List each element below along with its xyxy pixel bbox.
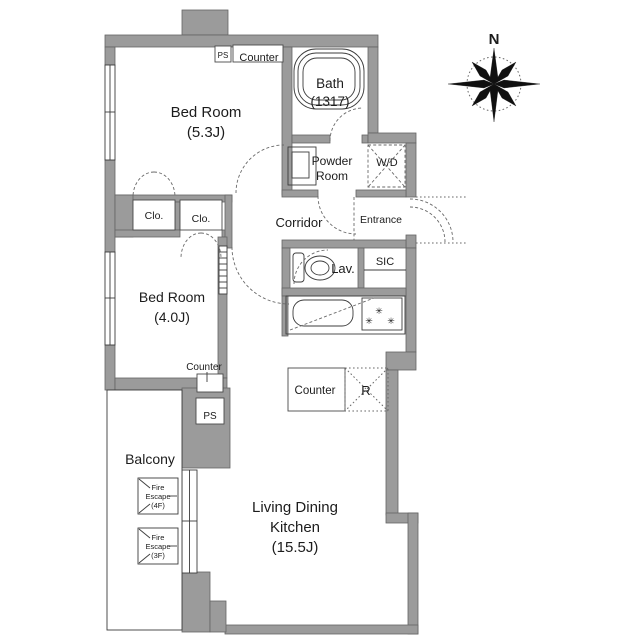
counter-mid-label: Counter — [186, 362, 222, 373]
ldk-counter-label: Counter — [295, 385, 336, 397]
bath-name: Bath — [316, 76, 344, 91]
wd-label: W/D — [376, 157, 397, 169]
fe3f-line2: Escape — [145, 542, 170, 551]
compass-arm-e — [494, 80, 540, 88]
sic-label: SIC — [376, 256, 394, 268]
closet2-label: Clo. — [192, 213, 211, 225]
compass-north-label: N — [489, 31, 500, 48]
closet1-label: Clo. — [145, 210, 164, 222]
compass: N — [448, 31, 540, 122]
counter-mid-box — [197, 374, 223, 392]
ps-mid-label: PS — [203, 411, 217, 422]
kitchen-sink — [293, 300, 353, 326]
ldk-line1: Living Dining — [252, 499, 338, 516]
fe4f-line2: Escape — [145, 492, 170, 501]
closet1-door-arc-left — [133, 172, 154, 197]
toilet — [293, 253, 335, 282]
bedroom2-window — [105, 252, 115, 345]
bedroom2-name: Bed Room — [139, 289, 205, 305]
floor-plan-canvas: N Bed Room (5.3J) Bath (1317) Powder Roo… — [0, 0, 640, 639]
bedroom1-window — [105, 65, 115, 160]
bedroom1-size: (5.3J) — [187, 124, 225, 141]
powder-door-arc — [318, 196, 356, 234]
fe4f-line3: (4F) — [151, 501, 165, 510]
closet2-door-arc-left — [181, 233, 201, 258]
bedroom1-door-arc — [236, 145, 284, 193]
compass-arm-s — [490, 84, 498, 122]
burner-icon: ✳ — [365, 316, 373, 326]
fe4f-line1: Fire — [152, 483, 165, 492]
ps-top-label: PS — [218, 51, 229, 60]
powder-line1: Powder — [312, 154, 353, 168]
powder-line2: Room — [316, 169, 348, 183]
fe3f-line3: (3F) — [151, 551, 165, 560]
sliding-door-hatch — [219, 246, 227, 294]
balcony — [107, 390, 182, 630]
lavatory-label: Lav. — [331, 261, 355, 276]
bath-size: (1317) — [310, 94, 349, 109]
burner-icon: ✳ — [387, 316, 395, 326]
floor-plan: N Bed Room (5.3J) Bath (1317) Powder Roo… — [0, 0, 640, 639]
fe3f-line1: Fire — [152, 533, 165, 542]
entrance-door-arc-outer — [410, 199, 453, 242]
bath-door-arc — [330, 108, 363, 141]
corridor-label: Corridor — [276, 215, 324, 230]
bedroom2-size: (4.0J) — [154, 309, 190, 325]
balcony-label: Balcony — [125, 451, 175, 467]
counter-top-label: Counter — [239, 52, 278, 64]
bedroom1-name: Bed Room — [171, 104, 242, 121]
compass-arm-n — [490, 48, 498, 84]
kitchen-counter — [286, 296, 405, 334]
refrigerator-label: R — [361, 383, 370, 398]
ldk-balcony-window — [182, 470, 197, 573]
closet1-door-arc-right — [154, 172, 175, 197]
compass-arm-w — [448, 80, 494, 88]
ldk-size: (15.5J) — [272, 539, 319, 556]
entrance-label: Entrance — [360, 214, 402, 226]
ldk-door-arc — [232, 247, 289, 304]
burner-icon: ✳ — [375, 306, 383, 316]
ldk-line2: Kitchen — [270, 519, 320, 536]
